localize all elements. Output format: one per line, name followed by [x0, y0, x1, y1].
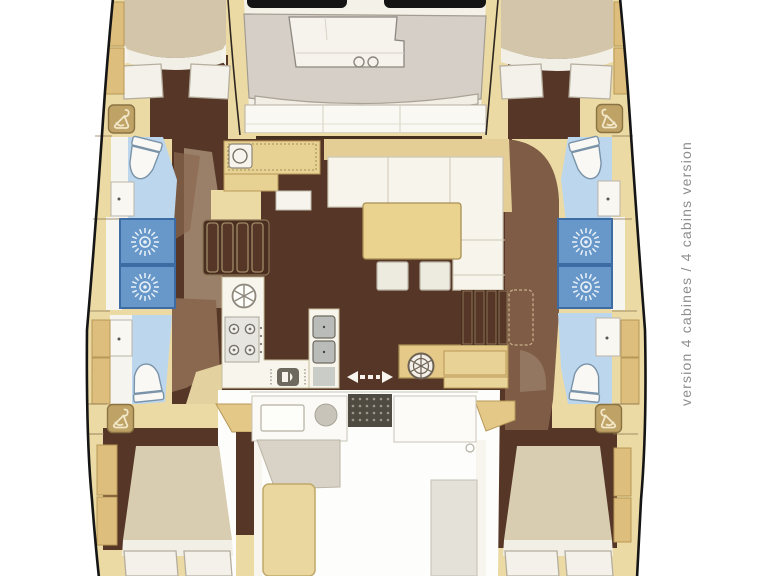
svg-text:version 4 cabines / 4 cabins v: version 4 cabines / 4 cabins version	[678, 141, 694, 406]
